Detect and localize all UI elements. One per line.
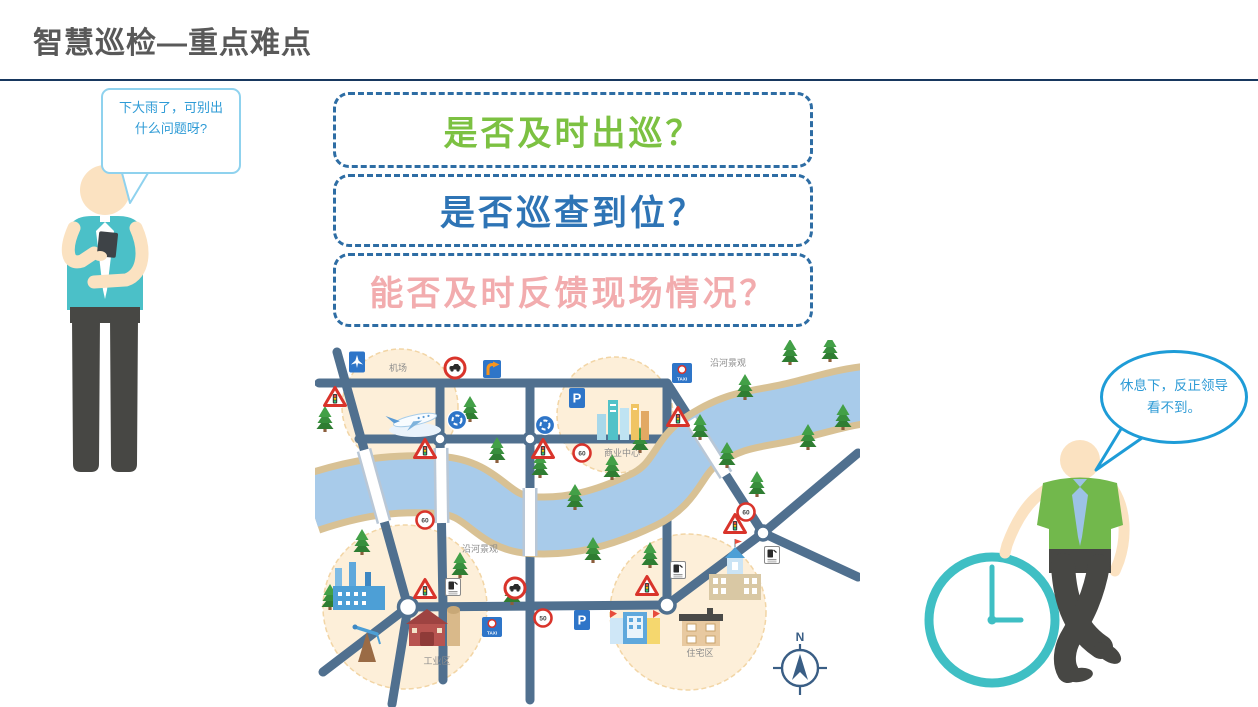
industrial-label: 工业区 (423, 656, 450, 666)
question-text-2: 是否巡查到位？ (440, 185, 706, 236)
svg-text:P: P (578, 613, 587, 628)
taxi-stand-sign: TAXI (672, 363, 692, 383)
riverside-label-bottom: 沿河景观 (462, 543, 498, 554)
city-map-illustration: P P TAXI TAXI 60 60 60 50 机场 商业中心 沿河景观 沿… (315, 340, 860, 707)
question-box-site-feedback: 能否及时反馈现场情况？ (333, 253, 813, 327)
svg-text:TAXI: TAXI (487, 631, 497, 636)
riverside-label-top: 沿河景观 (710, 357, 746, 368)
airport-sign (349, 352, 365, 373)
svg-text:50: 50 (539, 615, 547, 622)
speed-limit-60-sign: 60 (574, 445, 591, 462)
parking-sign: P (569, 388, 585, 408)
compass-rose-icon: N (773, 630, 827, 695)
commercial-label: 商业中心 (604, 447, 640, 458)
svg-text:N: N (796, 630, 805, 644)
svg-text:P: P (573, 391, 582, 406)
svg-text:60: 60 (421, 517, 429, 524)
question-box-timely-patrol: 是否及时出巡？ (333, 92, 813, 168)
speed-limit-60-sign: 60 (417, 512, 434, 529)
roundabout-signs (448, 411, 555, 435)
svg-text:60: 60 (578, 450, 586, 457)
bridge (441, 448, 442, 523)
svg-text:60: 60 (742, 509, 750, 516)
right-speech-bubble: 休息下，反正领导看不到。 (1100, 350, 1248, 444)
worker-pants (70, 307, 140, 472)
left-bubble-tail (118, 171, 154, 207)
parking-sign: P (574, 610, 590, 630)
clock-icon (929, 557, 1055, 683)
speed-limit-60-sign: 60 (738, 504, 755, 521)
taxi-stand-sign: TAXI (482, 617, 502, 637)
page-title: 智慧巡检—重点难点 (33, 18, 312, 62)
svg-text:TAXI: TAXI (677, 377, 687, 382)
left-speech-bubble: 下大雨了，可别出什么问题呀? (101, 88, 241, 174)
title-divider (0, 79, 1258, 81)
right-turn-sign (483, 360, 501, 378)
speed-limit-50-sign: 50 (535, 610, 552, 627)
question-text-3: 能否及时反馈现场情况？ (370, 266, 777, 315)
airport-label: 机场 (389, 362, 407, 373)
question-box-patrol-coverage: 是否巡查到位？ (333, 174, 813, 247)
residential-label: 住宅区 (686, 647, 713, 658)
question-text-1: 是否及时出巡？ (444, 106, 703, 155)
